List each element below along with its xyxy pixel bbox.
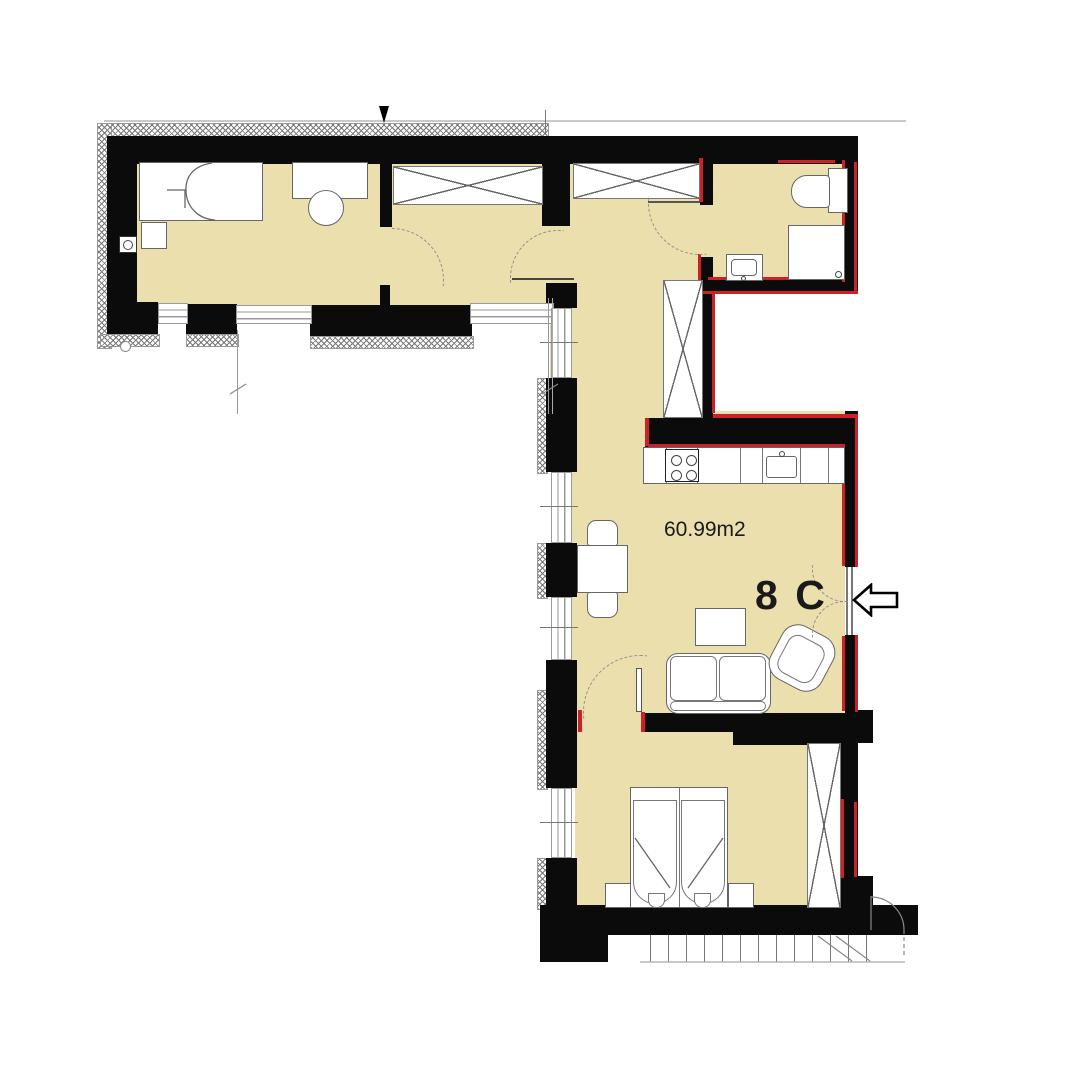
washbasin-bowl — [731, 259, 757, 276]
counter-divider-4 — [762, 448, 763, 483]
pillow-tab-right — [694, 893, 711, 908]
red-edge-kitchen-north-top — [713, 414, 858, 418]
pillow-tab-left — [648, 893, 665, 908]
wall-south-pier1 — [107, 302, 158, 334]
dimension-line-2 — [548, 298, 549, 414]
burner-2 — [686, 455, 697, 466]
wall-south-bedroom — [573, 905, 918, 935]
wall-south-pier2 — [186, 304, 237, 334]
single-bed — [139, 162, 263, 221]
window-tick-2 — [540, 506, 578, 507]
wall-west-pier5 — [546, 858, 577, 908]
red-edge-notch-west — [712, 293, 715, 413]
wall-west-pier3 — [546, 543, 577, 597]
wardrobe-tall — [663, 280, 703, 418]
dimension-line-1 — [237, 330, 238, 414]
wall-stub-east — [858, 710, 873, 743]
site-boundary-line — [104, 120, 906, 122]
wall-west-pier2 — [546, 378, 577, 472]
nightstand-left — [605, 883, 631, 908]
counter-divider-3 — [740, 448, 741, 483]
wall-kitchen-north — [645, 418, 858, 447]
nightstand-north — [141, 222, 167, 249]
reference-line — [545, 110, 546, 134]
red-edge-kitchen-east-outer — [855, 417, 858, 567]
meter-dial — [123, 240, 133, 250]
kitchen-sink — [766, 456, 797, 478]
counter-divider-5 — [800, 448, 801, 483]
window-north-wing-2 — [236, 305, 312, 324]
stool — [308, 190, 344, 226]
wall-west-pier4 — [546, 660, 577, 788]
window-west-2 — [551, 472, 572, 543]
nightstand-right — [728, 883, 754, 908]
dining-chair-top — [587, 520, 618, 546]
toilet-bowl — [791, 175, 830, 208]
red-edge-bathdoor-jamb — [698, 254, 701, 280]
window-north-wing-1 — [158, 303, 188, 324]
unit-label: 8 C — [755, 572, 828, 619]
red-edge-living-east-inner — [842, 636, 845, 711]
wardrobe-bedroom — [807, 743, 841, 908]
dimension-line-3 — [552, 298, 553, 414]
floor-plan-canvas: 60.99m2 8 C — [0, 0, 1080, 1080]
dining-chair-bottom — [587, 592, 618, 618]
red-edge-bath-south-bottom — [701, 291, 858, 294]
red-edge-bath-east-outer — [854, 162, 857, 293]
wall-bedroom-north — [642, 713, 858, 732]
drain-symbol — [120, 341, 131, 352]
burner-4 — [686, 470, 697, 481]
red-edge-kitchen-wall-end — [645, 418, 649, 446]
area-label: 60.99m2 — [664, 518, 746, 542]
deck-ticks — [650, 935, 873, 962]
wall-room-divider — [380, 164, 392, 227]
shower-drain — [835, 271, 842, 278]
burner-3 — [671, 470, 682, 481]
red-edge-living-east-outer — [855, 635, 858, 712]
red-edge-bedroom-east-inner — [841, 799, 844, 878]
wardrobe-corridor — [393, 166, 543, 205]
door-leaf-bathroom — [648, 201, 700, 203]
red-edge-beddoor-jamb-left — [578, 710, 582, 732]
wardrobe-hall — [573, 163, 700, 199]
wall-corner-southeast — [845, 876, 873, 908]
red-edge-bath-north — [778, 160, 835, 163]
window-tick-1 — [540, 342, 578, 343]
wall-corridor-hall-pier — [542, 164, 570, 226]
sofa-back — [670, 701, 766, 711]
washbasin-drain — [741, 276, 746, 281]
toilet-tank — [828, 168, 848, 213]
red-edge-bedroom-east-outer — [854, 802, 857, 877]
door-leaf-bedroom — [636, 668, 642, 712]
dining-table — [577, 545, 628, 593]
window-north-wing-3 — [470, 303, 554, 324]
wall-corner-southwest — [540, 905, 608, 962]
duvet-left — [633, 800, 677, 904]
sofa-cushion-left — [670, 656, 717, 701]
window-west-3 — [551, 597, 572, 660]
wall-divider-jamb — [380, 285, 390, 307]
kitchen-faucet — [779, 451, 785, 457]
insulation-hatch-south3 — [310, 336, 474, 349]
survey-marker — [379, 106, 389, 123]
wall-south-pier3 — [310, 305, 472, 336]
window-tick-4 — [540, 822, 578, 823]
sofa-cushion-right — [719, 656, 766, 701]
entrance-arrow-icon — [852, 583, 900, 617]
duvet-right — [681, 800, 725, 904]
burner-1 — [671, 455, 682, 466]
counter-divider-6 — [828, 448, 829, 483]
wall-north — [107, 136, 858, 164]
insulation-hatch-south2 — [186, 334, 239, 347]
coffee-table — [695, 608, 746, 646]
bed-divider-line — [679, 788, 680, 907]
window-tick-3 — [540, 627, 578, 628]
